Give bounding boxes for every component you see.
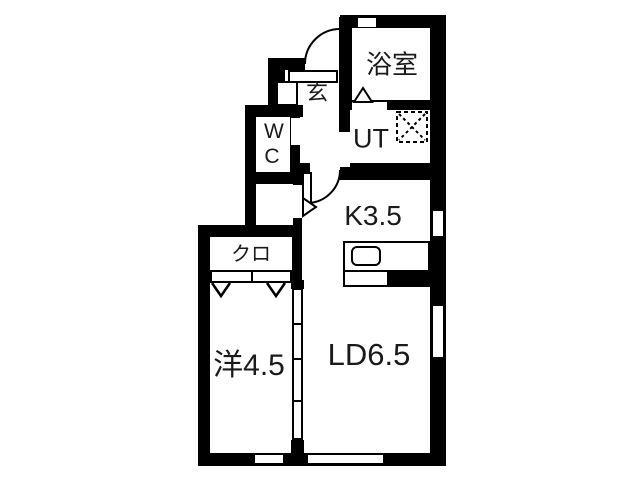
- label-entrance: 玄: [306, 75, 328, 107]
- floor-plan: 浴室 UT 玄 WC K3.5 クロ 洋4.5 LD6.5: [0, 0, 640, 480]
- label-kitchen: K3.5: [344, 200, 402, 232]
- plan-marks: [0, 0, 640, 480]
- closet-bifold-mark-right-icon: [267, 283, 285, 296]
- label-living-dining: LD6.5: [328, 337, 411, 373]
- kitchen-door-arc-icon: [307, 170, 340, 203]
- label-utility: UT: [353, 124, 389, 155]
- washing-machine-pan-icon: [397, 112, 427, 142]
- label-bathroom: 浴室: [366, 45, 418, 82]
- bathroom-door-triangle-icon: [354, 88, 372, 102]
- closet-bifold-mark-left-icon: [212, 283, 230, 296]
- label-closet: クロ: [231, 238, 271, 267]
- label-western-room: 洋4.5: [213, 340, 285, 384]
- entrance-door-arc-icon: [305, 29, 340, 64]
- kitchen-door-swing-triangle-icon: [303, 198, 316, 216]
- label-toilet: WC: [264, 119, 280, 169]
